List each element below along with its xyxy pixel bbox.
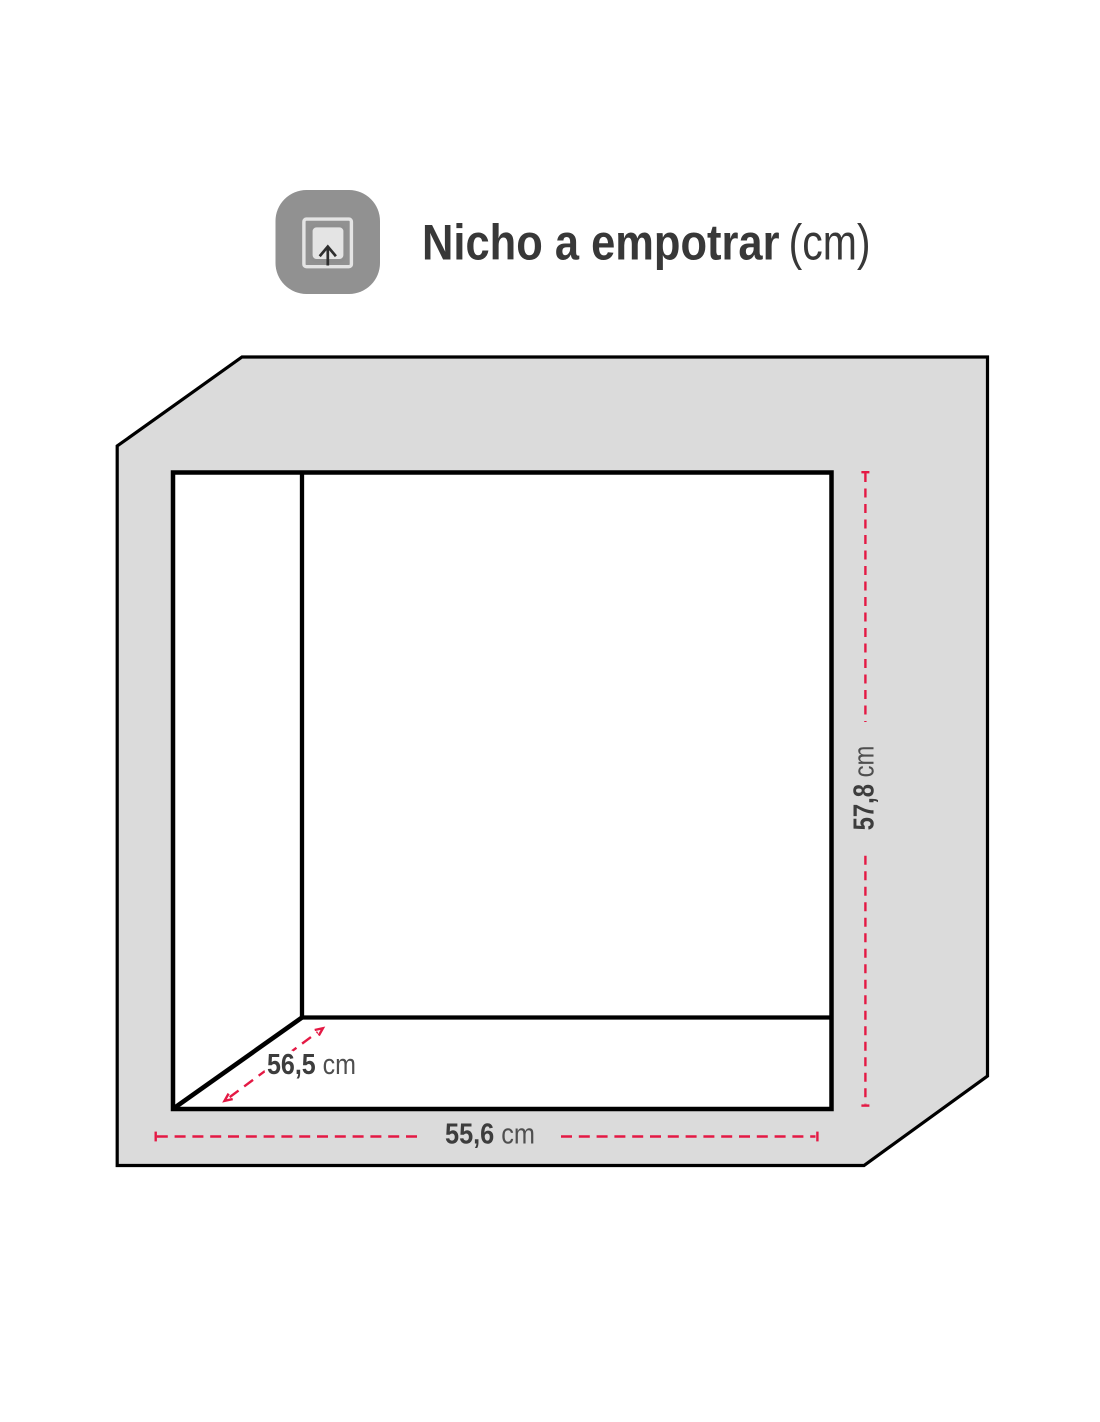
svg-text:Nicho a empotrar: Nicho a empotrar (422, 215, 780, 271)
svg-text:(cm): (cm) (789, 215, 871, 271)
svg-text:56,5 cm: 56,5 cm (267, 1049, 356, 1081)
svg-text:55,6 cm: 55,6 cm (445, 1119, 535, 1151)
svg-text:57,8 cm: 57,8 cm (849, 746, 881, 831)
